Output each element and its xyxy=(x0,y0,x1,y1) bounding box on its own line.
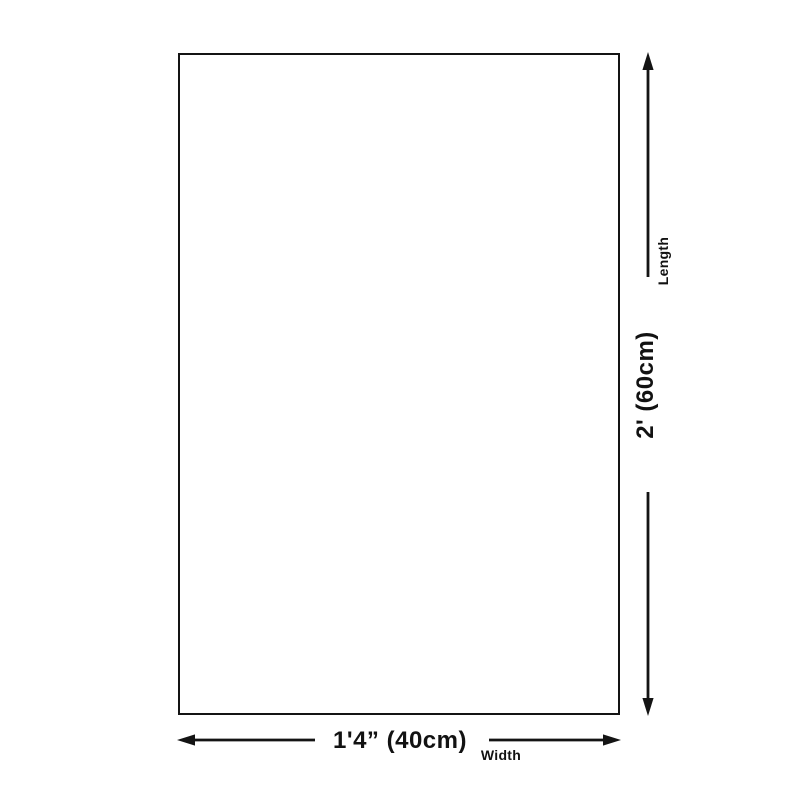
length-name-label: Length xyxy=(653,201,673,321)
arrow-right-icon xyxy=(603,734,621,745)
arrow-left-icon xyxy=(177,734,195,745)
width-name-label: Width xyxy=(461,746,541,764)
arrow-down-icon xyxy=(642,698,653,716)
arrow-up-icon xyxy=(642,52,653,70)
product-dimension-diagram: 2' (60cm) Length 1'4” (40cm) Width xyxy=(0,0,800,800)
dimension-arrow-lines xyxy=(0,0,800,800)
